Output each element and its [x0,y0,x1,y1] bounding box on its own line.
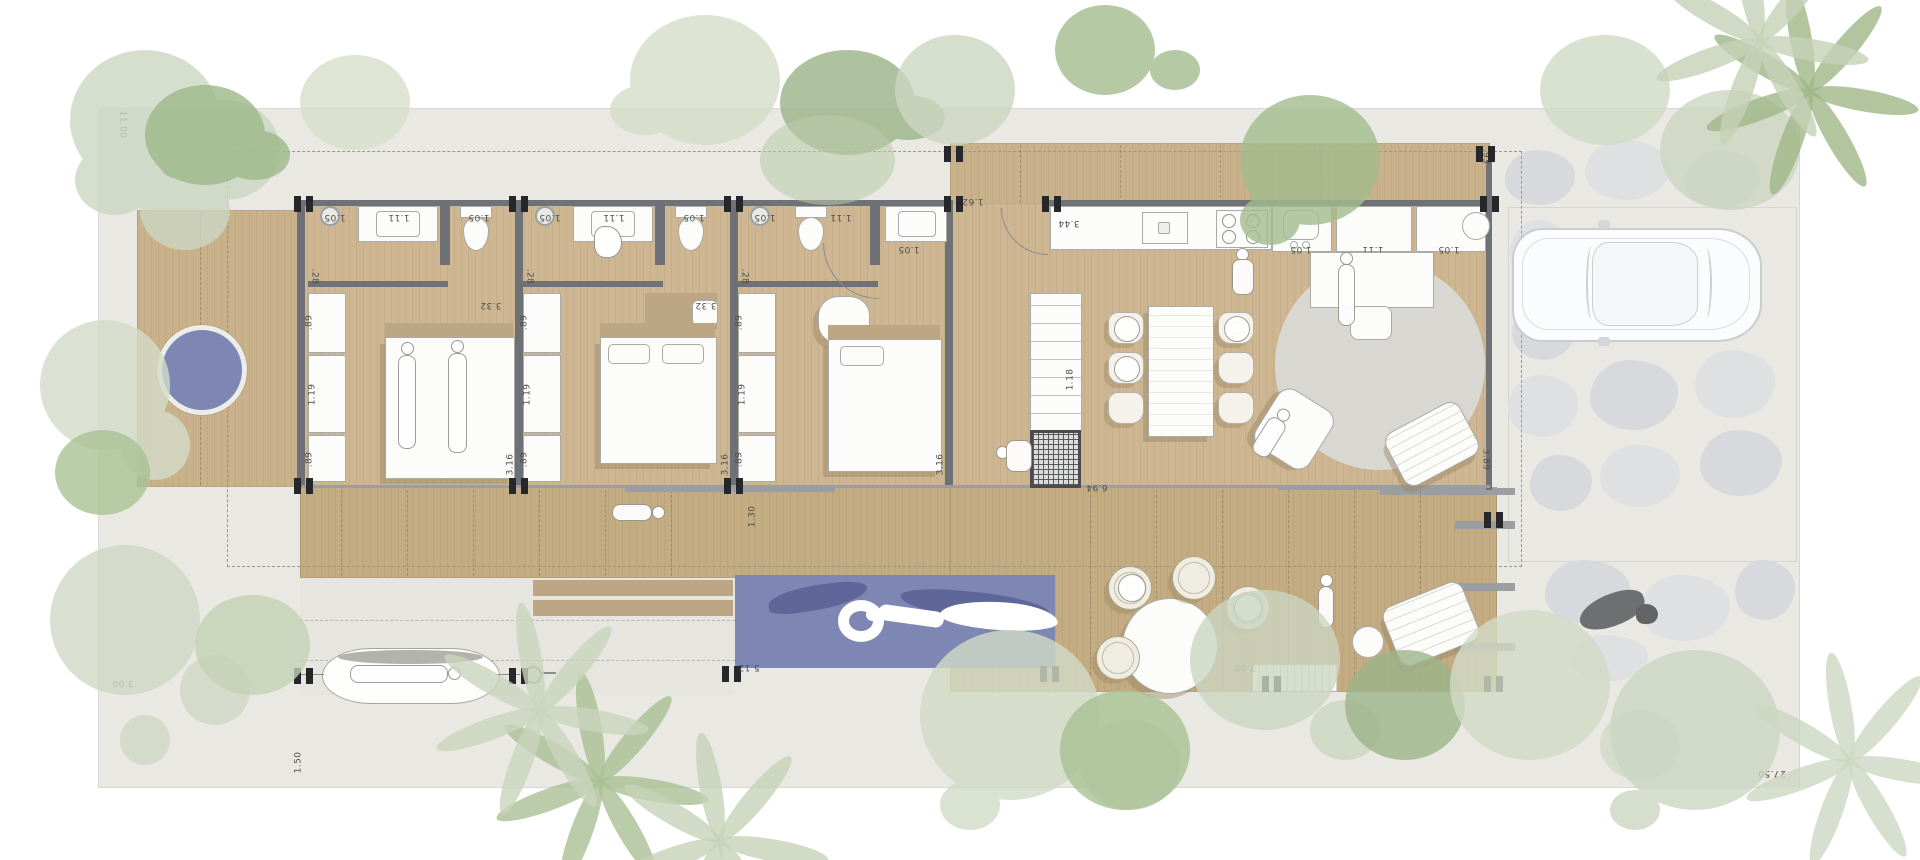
dining-chair [1218,352,1254,384]
tree-canopy [895,35,1015,145]
dim-label: 1.11 [603,212,625,221]
dim-label: 1.05 [683,212,705,221]
dim-label: .28 [739,269,748,285]
burner-icon [1246,214,1260,228]
tree-canopy [630,15,780,145]
dim-label: .89 [735,452,744,468]
dim-label: 1.19 [308,384,317,406]
pool-bench-step [533,580,733,596]
dim-label: 3.89 [1480,449,1489,471]
column-pair [724,478,743,494]
dim-label: 1.19 [523,384,532,406]
tree-canopy [1610,650,1780,810]
dim-label: .89 [305,452,314,468]
dim-label: 1.19 [738,384,747,406]
burner-icon [1222,230,1236,244]
column-pair [724,196,743,212]
tree-canopy [145,85,265,185]
sink-basin [898,211,936,237]
kitchen-sink-drain [1158,222,1170,234]
column-pair [1042,196,1061,212]
column-pair [944,146,963,162]
burner-icon [1246,230,1260,244]
dining-chair [1218,392,1254,424]
car-cabin [1592,242,1698,326]
wicker-chair [1172,556,1216,600]
dim-label: 1.11 [830,212,852,221]
column-pair [944,196,963,212]
grid-line [1020,145,1021,203]
bedroom-divider-wall [515,203,523,487]
bed-headboard [600,323,715,337]
grid-line [605,490,606,576]
tree-canopy [1060,690,1190,810]
dim-label: 1.62 [962,196,984,205]
shelving-unit [1030,293,1082,432]
dim-label: .89 [520,452,529,468]
dim-label: 1.05 [754,212,776,221]
dim-label: 1.05 [1438,244,1460,253]
dining-table [1148,306,1214,437]
deck-step [1455,583,1515,591]
side-table-ball [1352,626,1384,658]
hot-tub [157,325,247,415]
car-windshield [1586,246,1598,320]
pillow [662,344,704,364]
grid-line [539,490,540,576]
tree-canopy [55,430,150,515]
tree-canopy [1190,590,1340,730]
dim-label: 1.05 [539,212,561,221]
dim-label: 3.44 [1058,218,1080,227]
tree-canopy [195,595,310,695]
fireplace-stove [1030,430,1081,488]
showering-person [594,226,622,258]
column-pair [294,478,313,494]
sliding-door-track [1278,485,1383,490]
column-pair [509,478,528,494]
bed-headboard [828,325,940,339]
column-pair [1480,196,1499,212]
tree-canopy [50,545,200,695]
west-wall [297,203,305,487]
bathroom-south-wall [523,281,663,287]
dog-head [1636,604,1658,624]
dim-label: 1.11 [388,212,410,221]
tree-canopy [1540,35,1670,145]
grid-line [407,490,408,576]
bathroom-partition [655,203,665,265]
tree-canopy [1450,610,1610,760]
dim-label: 1.05 [898,244,920,253]
car-rear-window [1700,248,1712,318]
grid-line [1090,490,1091,690]
car-mirror [1598,337,1610,346]
dim-label: .28 [309,269,318,285]
dim-label: 1.50 [294,752,303,774]
car-mirror [1598,220,1610,229]
bedroom-divider-wall [730,203,738,487]
dim-label: 3.32 [695,300,717,309]
tree-canopy [1055,5,1155,95]
dim-label: .89 [735,315,744,331]
column-pair [1484,512,1503,528]
grid-line [1120,145,1121,203]
dim-label: 1.05 [468,212,490,221]
dim-label: 1.18 [1066,369,1075,391]
grid-line [671,490,672,576]
dim-label: .89 [305,315,314,331]
pool-bench-step [533,600,733,616]
bed-headboard [385,323,513,337]
wall-basin [1462,212,1490,240]
dining-chair [1108,392,1144,424]
dim-label: 1.05 [324,212,346,221]
dim-label: 1.05 [1290,244,1312,253]
swimmer-head [866,608,879,621]
dim-label: .28 [524,269,533,285]
tree-canopy [300,55,410,150]
column-pair [294,196,313,212]
tree-canopy [760,115,895,205]
wicker-chair [1096,636,1140,680]
dim-label: 3.32 [480,300,502,309]
dim-label: 3.16 [936,454,945,476]
hall-wall [945,203,953,487]
site-plan: 1.05 1.11 1.05 .28 .89 1.19 .89 3.16 1.0… [0,0,1920,860]
pillow [608,344,650,364]
pillow [840,346,884,366]
pool-float-ring [838,600,884,642]
bathroom-south-wall [308,281,448,287]
burner-icon [1222,214,1236,228]
bathroom-partition [440,203,450,265]
dim-label: .89 [520,315,529,331]
tree-canopy [1345,650,1465,760]
study-desk [1310,252,1434,308]
dim-label: 1.30 [748,506,757,528]
column-pair [1476,146,1495,162]
grid-line [1220,145,1221,203]
desk-chair [1350,306,1392,340]
grid-line [473,490,474,576]
grid-line [1354,490,1355,690]
dim-label: 3.16 [721,454,730,476]
dim-label: 6.94 [1086,482,1108,491]
grid-line [341,490,342,576]
dim-label: 5.12 [738,662,760,671]
dim-label: 3.16 [506,454,515,476]
column-pair [509,196,528,212]
tree-canopy [1240,95,1380,225]
